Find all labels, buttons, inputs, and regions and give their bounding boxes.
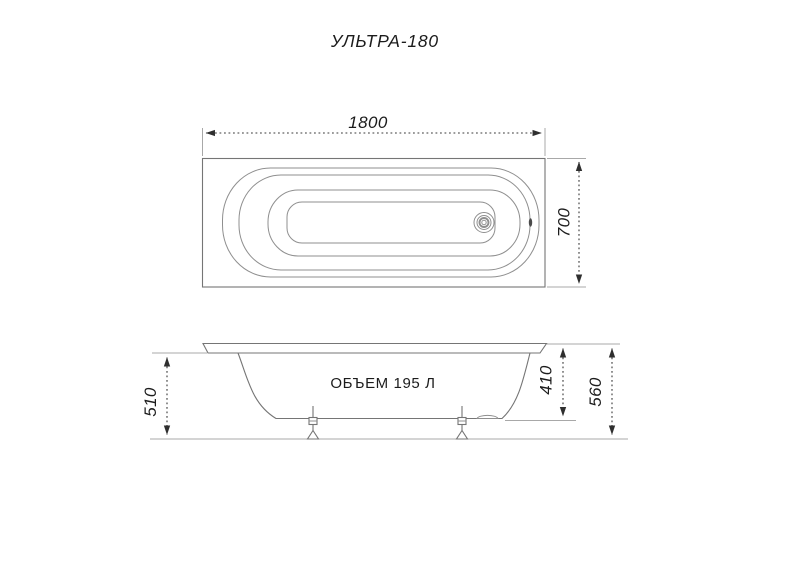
tub-height-dimension: 410 (537, 349, 564, 417)
leg-foot (457, 431, 468, 440)
leg-front (308, 406, 319, 439)
dimension-label-700: 700 (555, 208, 574, 238)
side-view: ОБЪЕМ 195 Л 510 410 560 (141, 344, 628, 440)
volume-label: ОБЪЕМ 195 Л (330, 375, 435, 392)
dimension-label-560: 560 (586, 377, 605, 407)
length-dimension: 1800 (203, 113, 546, 156)
drawing-sheet: УЛЬТРА-180 1800 (0, 0, 800, 566)
dimension-label-1800: 1800 (348, 113, 388, 132)
overflow-icon (529, 218, 532, 226)
leg-rear (457, 406, 468, 439)
width-dimension: 700 (547, 159, 586, 288)
dimension-label-410: 410 (537, 365, 556, 395)
rim-profile (203, 344, 547, 354)
left-height-dimension: 510 (141, 358, 167, 435)
dimension-label-510: 510 (141, 387, 160, 417)
bathtub-technical-drawing: УЛЬТРА-180 1800 (0, 0, 800, 566)
drain-fitting-profile (477, 415, 498, 418)
drawing-title: УЛЬТРА-180 (330, 31, 439, 51)
total-height-dimension: 560 (586, 349, 612, 435)
top-view: 1800 700 (203, 113, 587, 287)
leg-foot (308, 431, 319, 440)
